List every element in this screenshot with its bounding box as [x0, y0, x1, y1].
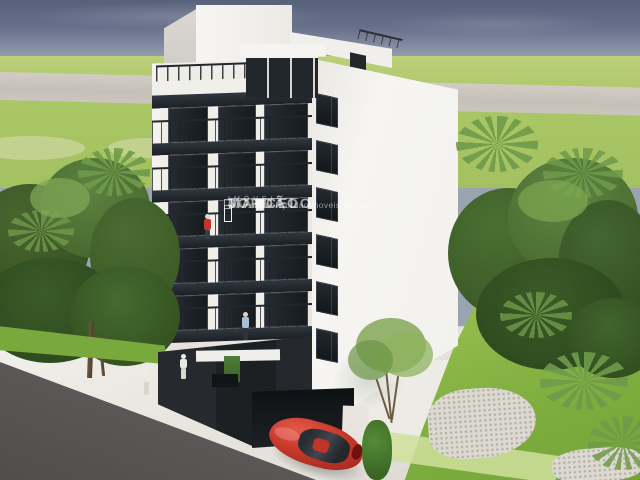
foliage-highlight	[518, 180, 588, 222]
pedestrian-white-1	[142, 366, 151, 398]
watermark-website: www.marcelojordaoimoveis.com.br	[228, 200, 372, 210]
palm-crown	[78, 148, 150, 196]
red-sedan	[266, 416, 374, 480]
tree-cluster-left	[0, 148, 168, 353]
person-legs	[243, 328, 248, 340]
person-legs	[144, 382, 149, 395]
window	[316, 93, 332, 126]
penthouse-glazing	[246, 54, 318, 98]
entrance-desk	[212, 374, 238, 387]
cloud	[380, 12, 610, 36]
person-torso	[143, 371, 150, 382]
person-torso	[204, 219, 211, 230]
tree-trunk	[391, 376, 399, 420]
window	[316, 140, 332, 173]
person-torso	[180, 359, 187, 368]
person-legs	[205, 230, 210, 239]
window	[316, 328, 332, 361]
person-torso	[242, 317, 249, 328]
realtor-watermark: MARCELO JORDÃO IMÓVEIS www.marcelojordao…	[228, 196, 423, 288]
tree-canopy	[348, 340, 393, 380]
small-tree	[348, 318, 440, 430]
person-red-shirt-on-balcony	[203, 214, 212, 242]
palm-crown	[456, 116, 538, 172]
pedestrian-white-2	[179, 354, 187, 381]
palm-crown	[500, 292, 572, 338]
person-blue-shirt-on-balcony	[241, 312, 251, 344]
person-legs	[181, 368, 186, 379]
palm-crown	[540, 352, 628, 410]
balcony-floor	[152, 103, 312, 156]
foliage-highlight	[30, 178, 90, 218]
architectural-rendering: MARCELO JORDÃO IMÓVEIS www.marcelojordao…	[0, 0, 640, 480]
